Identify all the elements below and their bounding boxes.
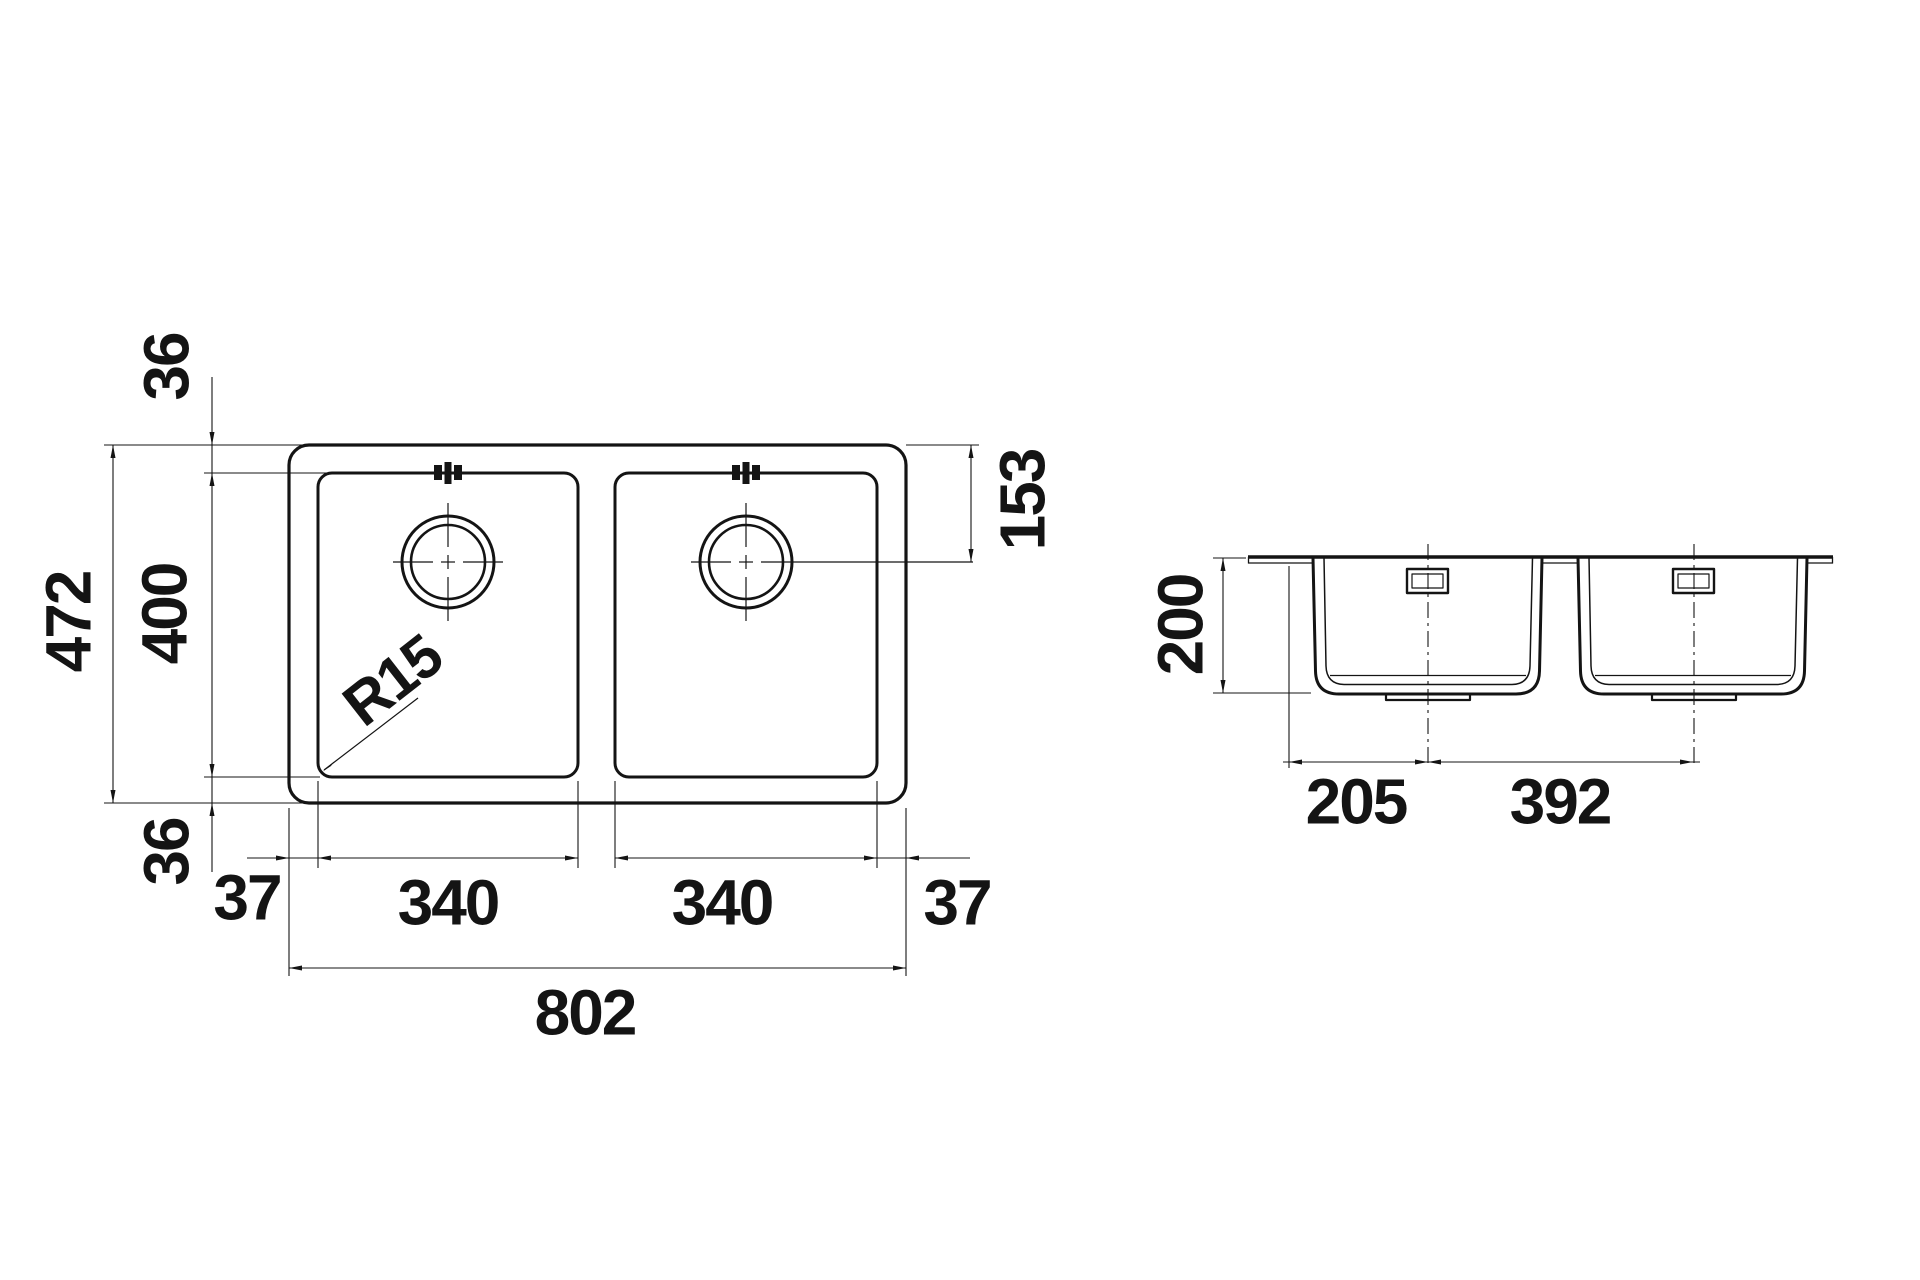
left-overflow-mark-icon (434, 462, 462, 484)
dim-label-bowl-cutout-depth: 400 (128, 564, 200, 665)
right-drain (691, 503, 973, 621)
dim-drain-offset: 153 (969, 445, 1059, 562)
right-bowl-inner-profile (1589, 558, 1798, 685)
dim-label-right-margin: 37 (923, 866, 990, 938)
dim-width-chain: 37 340 340 37 (213, 856, 990, 939)
side-view-left-bowl (1313, 544, 1542, 764)
corner-radius-callout: R15 (322, 622, 454, 772)
dim-overall-depth: 472 (32, 445, 115, 803)
left-drain-crosshair (393, 503, 503, 621)
right-bowl-outer-profile (1578, 558, 1807, 694)
dim-overall-width: 802 (289, 966, 906, 1049)
right-overflow-mark-icon (732, 462, 760, 484)
technical-drawing-canvas: 472 36 400 36 153 (0, 0, 1920, 1280)
right-drain-crosshair (691, 503, 973, 621)
dim-label-overall-depth: 472 (32, 571, 104, 672)
sink-outer-rim (289, 445, 906, 803)
top-view: 472 36 400 36 153 (32, 333, 1058, 1048)
dim-label-drain-spacing: 392 (1510, 765, 1611, 837)
dim-label-drain-offset: 153 (986, 449, 1058, 550)
dim-label-overall-width: 802 (535, 976, 636, 1048)
dim-label-bowl-depth: 200 (1144, 575, 1216, 676)
dim-label-edge-to-drain: 205 (1306, 765, 1407, 837)
side-view-right-bowl (1578, 544, 1807, 764)
dim-label-top-margin: 36 (130, 333, 202, 401)
dim-label-left-margin: 37 (213, 861, 280, 933)
side-view: 200 205 392 (1144, 544, 1833, 837)
dim-drain-position-chain: 205 392 (1283, 566, 1700, 837)
dim-label-right-bowl-width: 340 (672, 866, 773, 938)
dim-label-bottom-margin: 36 (130, 818, 202, 886)
dim-bowl-depth: 200 (1144, 558, 1311, 693)
dim-label-corner-radius: R15 (331, 622, 455, 739)
dim-label-left-bowl-width: 340 (398, 866, 499, 938)
sink-dimension-drawing: 472 36 400 36 153 (0, 0, 1920, 1280)
left-drain (393, 503, 503, 621)
